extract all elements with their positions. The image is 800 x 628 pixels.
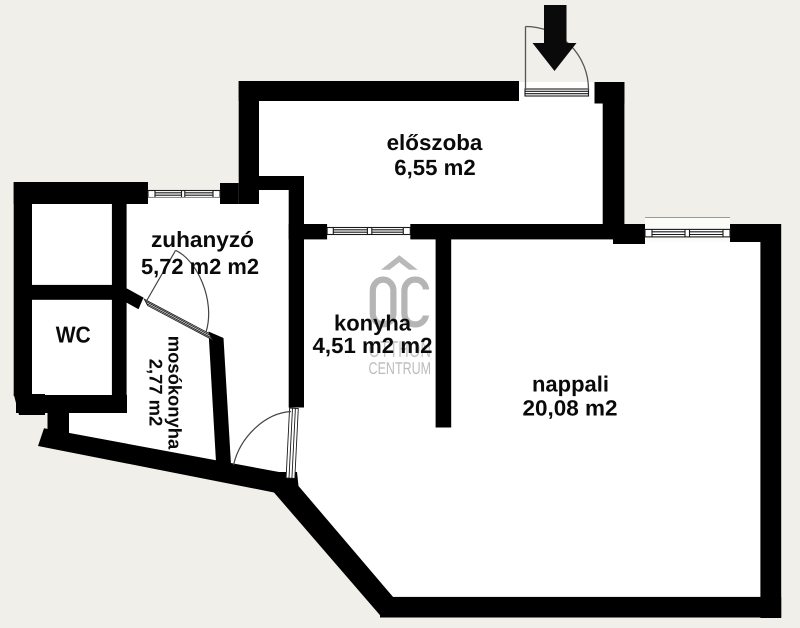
svg-text:4,51 m2 m2: 4,51 m2 m2 — [313, 333, 433, 358]
svg-text:20,08 m2: 20,08 m2 — [523, 396, 618, 421]
svg-text:nappali: nappali — [532, 371, 609, 396]
svg-text:2,77 m2: 2,77 m2 — [146, 359, 167, 426]
svg-text:mosókonyha: mosókonyha — [165, 336, 186, 450]
svg-text:5,72 m2 m2: 5,72 m2 m2 — [141, 254, 259, 279]
svg-text:6,55 m2: 6,55 m2 — [394, 155, 475, 180]
svg-text:zuhanyzó: zuhanyzó — [151, 227, 254, 252]
svg-text:előszoba: előszoba — [387, 130, 484, 155]
svg-text:CENTRUM: CENTRUM — [369, 359, 431, 378]
svg-text:WC: WC — [56, 322, 91, 348]
